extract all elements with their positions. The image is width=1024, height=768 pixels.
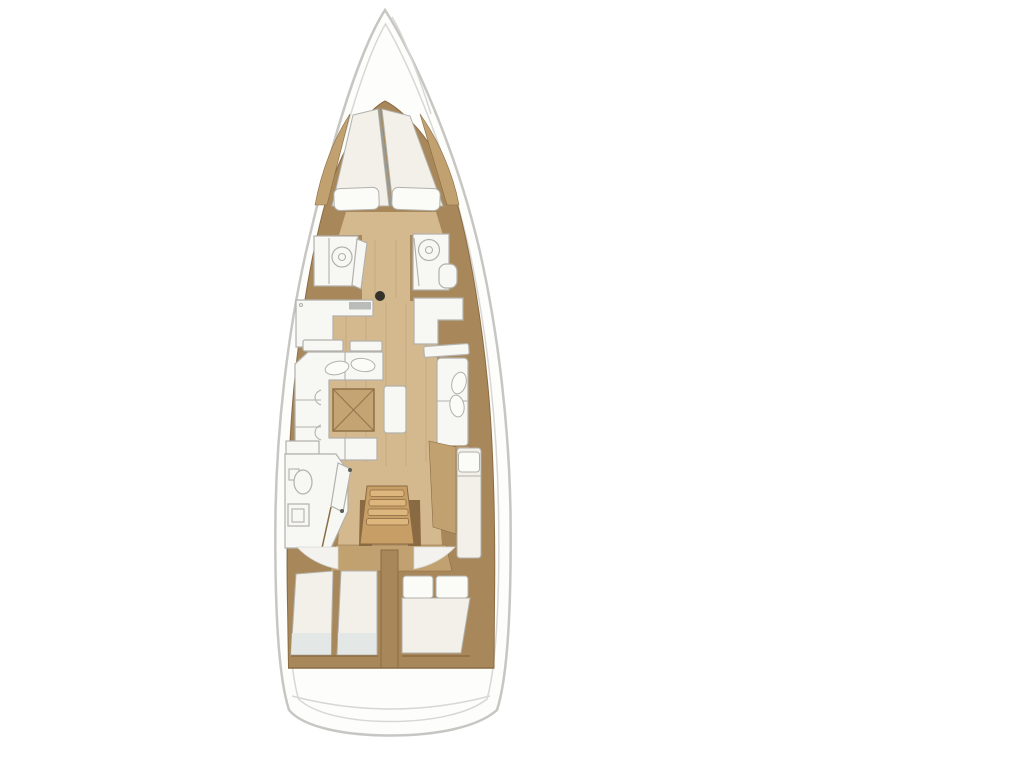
sink: [332, 247, 352, 267]
sink: [288, 504, 309, 526]
salon-shelf-left: [303, 340, 343, 351]
double-berth: [402, 598, 470, 653]
stair-step-1: [370, 490, 404, 497]
double-berth-pillow-1: [403, 576, 433, 598]
aft-cabin-divider-wall: [381, 550, 398, 668]
toilet: [439, 264, 457, 288]
vberth-pillow-starboard: [392, 187, 441, 211]
door-hinge-top: [348, 468, 352, 472]
stove-inset: [349, 302, 371, 310]
corridor-floor: [362, 235, 410, 301]
stair-step-2: [369, 500, 406, 507]
door-hinge-bottom: [340, 509, 344, 513]
double-berth-pillow-2: [436, 576, 468, 598]
vberth-pillow-port: [334, 187, 380, 211]
wardrobe: [429, 441, 456, 534]
forward-cabin-floor: [339, 212, 443, 235]
yacht-floorplan-svg: [0, 0, 1024, 768]
twin-berth-left-foot: [291, 633, 331, 654]
stair-step-3: [368, 509, 408, 516]
port-forward-head: [314, 236, 367, 289]
toilet: [294, 470, 312, 494]
starboard-aft-cabin: [402, 576, 470, 653]
settee-shelf: [424, 343, 470, 357]
salon-shelf-right: [350, 341, 382, 351]
center-bench: [384, 386, 406, 433]
stair-step-4: [367, 519, 409, 526]
twin-berth-right-foot: [338, 633, 376, 654]
yacht-floorplan-image: [0, 0, 1024, 768]
berth-pillow: [459, 452, 480, 472]
vanity: [286, 441, 319, 454]
mast-post: [375, 291, 385, 301]
sink: [419, 240, 440, 261]
